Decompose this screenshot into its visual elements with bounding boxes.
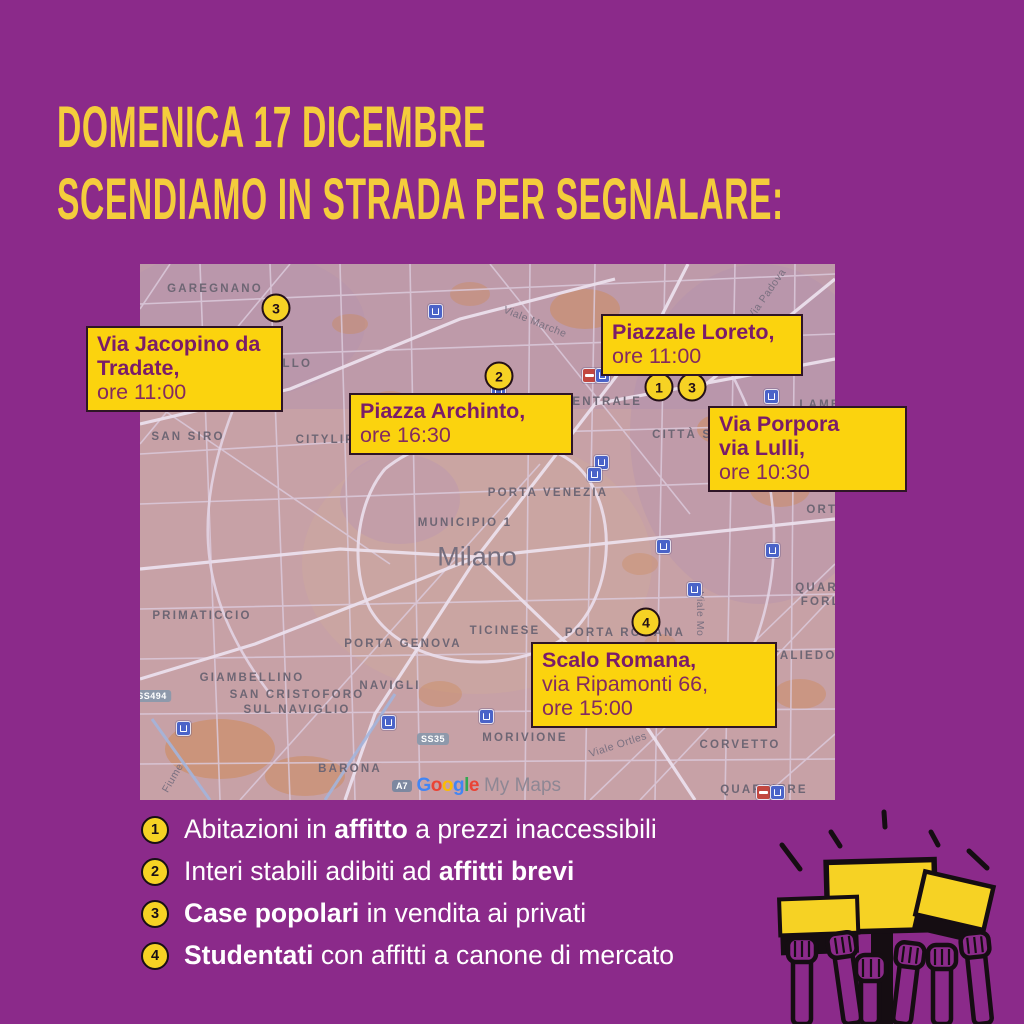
callout-line: via Ripamonti 66, xyxy=(542,672,766,696)
map-callout-via-jacopino: Via Jacopino daTradate,ore 11:00 xyxy=(86,326,283,412)
callout-line: ore 11:00 xyxy=(97,380,272,404)
callout-line: ore 11:00 xyxy=(612,344,792,368)
map-callout-via-porpora: Via Porporavia Lulli,ore 10:30 xyxy=(708,406,907,492)
issues-list: 1Abitazioni in affitto a prezzi inaccess… xyxy=(141,814,674,971)
legend-number-badge: 2 xyxy=(141,858,169,886)
map-marker: 1 xyxy=(645,373,674,402)
legend-item: 4Studentati con affitti a canone di merc… xyxy=(141,940,674,971)
map-marker: 4 xyxy=(632,608,661,637)
poster-background: DOMENICA 17 DICEMBRE SCENDIAMO IN STRADA… xyxy=(0,0,1024,1024)
legend-number-badge: 4 xyxy=(141,942,169,970)
event-title: DOMENICA 17 DICEMBRE SCENDIAMO IN STRADA… xyxy=(57,94,1024,238)
legend-item: 3Case popolari in vendita ai privati xyxy=(141,898,674,929)
legend-number-badge: 1 xyxy=(141,816,169,844)
legend-item-text: Case popolari in vendita ai privati xyxy=(184,898,586,929)
title-line-2: SCENDIAMO IN STRADA PER SEGNALARE: xyxy=(57,166,784,233)
map-marker: 2 xyxy=(485,362,514,391)
callout-line: Piazza Archinto, xyxy=(360,399,562,423)
milano-map: GAREGNANOSAN SIROPORTELLOCITYLIFEPRIMATI… xyxy=(140,264,835,800)
legend-item-text: Interi stabili adibiti ad affitti brevi xyxy=(184,856,574,887)
map-marker: 3 xyxy=(262,294,291,323)
callout-line: Via Porpora xyxy=(719,412,896,436)
callout-line: Tradate, xyxy=(97,356,272,380)
legend-item-text: Abitazioni in affitto a prezzi inaccessi… xyxy=(184,814,657,845)
callout-line: ore 15:00 xyxy=(542,696,766,720)
map-callout-piazza-archinto: Piazza Archinto,ore 16:30 xyxy=(349,393,573,455)
map-callout-piazzale-loreto: Piazzale Loreto,ore 11:00 xyxy=(601,314,803,376)
legend-item: 2Interi stabili adibiti ad affitti brevi xyxy=(141,856,674,887)
callout-line: Piazzale Loreto, xyxy=(612,320,792,344)
protest-signs-illustration xyxy=(770,795,1016,1024)
legend-item: 1Abitazioni in affitto a prezzi inaccess… xyxy=(141,814,674,845)
callout-line: Scalo Romana, xyxy=(542,648,766,672)
map-callout-scalo-romana: Scalo Romana,via Ripamonti 66,ore 15:00 xyxy=(531,642,777,728)
callout-line: via Lulli, xyxy=(719,436,896,460)
title-line-1: DOMENICA 17 DICEMBRE xyxy=(57,94,486,161)
callout-line: Via Jacopino da xyxy=(97,332,272,356)
map-marker: 3 xyxy=(678,373,707,402)
callout-line: ore 16:30 xyxy=(360,423,562,447)
legend-item-text: Studentati con affitti a canone di merca… xyxy=(184,940,674,971)
legend-number-badge: 3 xyxy=(141,900,169,928)
callout-line: ore 10:30 xyxy=(719,460,896,484)
